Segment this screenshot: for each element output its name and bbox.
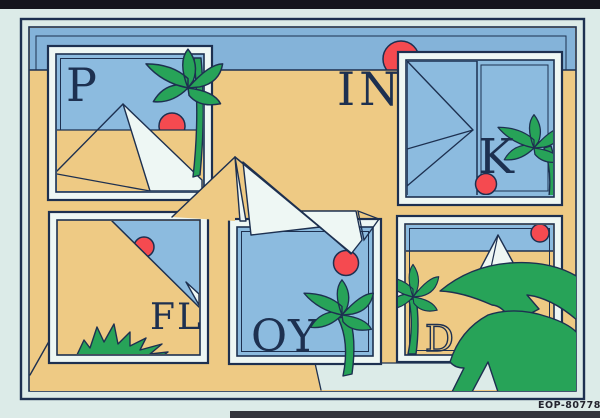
letter-in: IN — [337, 62, 403, 116]
letter-k: K — [478, 129, 515, 185]
pink-floyd-poster: IN P K — [0, 0, 600, 418]
panel-p: P — [48, 46, 223, 200]
panel-fl: FL — [49, 212, 208, 363]
letter-d: D — [425, 319, 454, 360]
letter-p: P — [66, 58, 97, 112]
panel-d-sun — [531, 224, 549, 242]
panel-oy-sun — [334, 251, 359, 276]
letter-fl: FL — [150, 297, 203, 338]
panel-k: K — [398, 52, 564, 205]
letter-oy: OY — [251, 311, 318, 362]
poster-photo: IN P K — [0, 0, 600, 418]
photo-bottom-edge — [230, 411, 600, 418]
photo-top-edge — [0, 0, 600, 9]
catalog-code: EOP-80778 — [538, 400, 600, 411]
